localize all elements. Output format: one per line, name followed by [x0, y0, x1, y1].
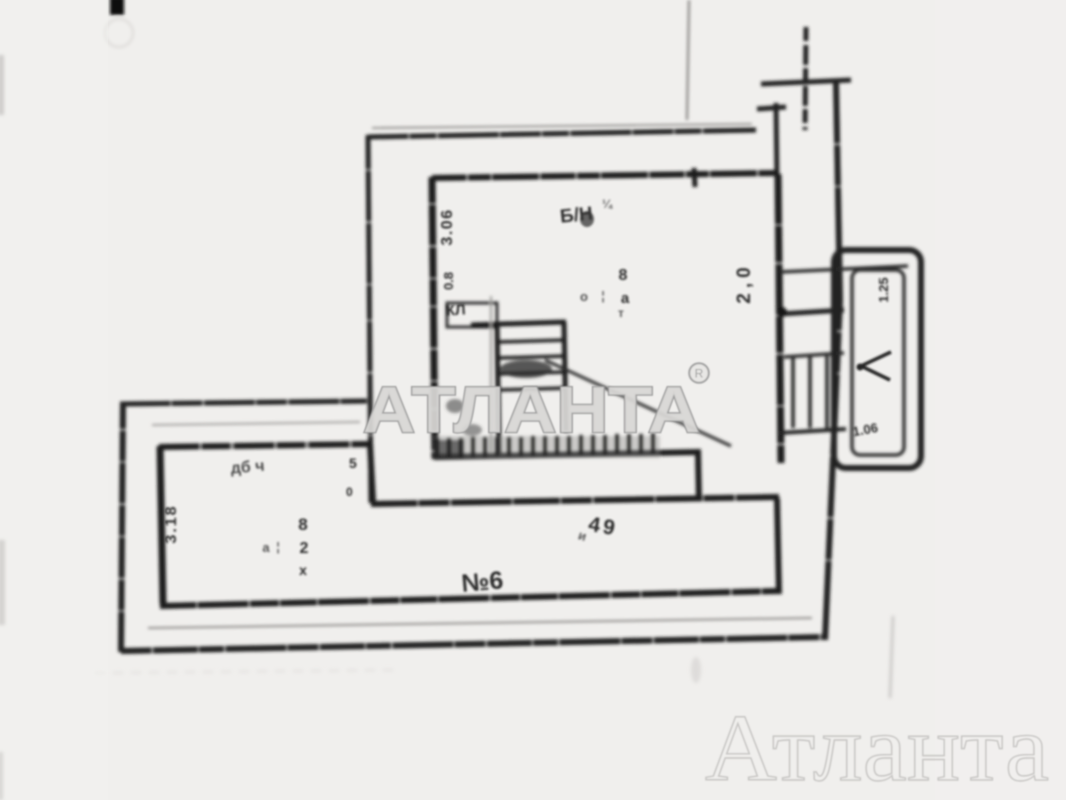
svg-text:0: 0 — [346, 485, 353, 499]
svg-text:т: т — [618, 306, 624, 320]
svg-text:КЛ: КЛ — [445, 301, 466, 319]
svg-text:¦: ¦ — [276, 540, 279, 554]
svg-text:о: о — [580, 289, 588, 304]
svg-text:АТЛАНТА: АТЛАНТА — [363, 373, 700, 446]
svg-text:R: R — [695, 367, 704, 381]
svg-text:5: 5 — [349, 455, 357, 471]
svg-text:а: а — [262, 540, 270, 555]
svg-text:а: а — [621, 290, 630, 307]
svg-text:0.8: 0.8 — [441, 272, 456, 290]
svg-text:8: 8 — [619, 267, 628, 284]
svg-text:дб ч: дб ч — [230, 458, 265, 478]
svg-text:2,0: 2,0 — [734, 262, 755, 303]
svg-text:8: 8 — [298, 515, 307, 534]
svg-text:Атланта: Атланта — [705, 695, 1049, 800]
svg-text:1.25: 1.25 — [876, 277, 891, 302]
svg-text:3.06: 3.06 — [439, 208, 456, 245]
svg-text:¦: ¦ — [601, 289, 604, 303]
svg-text:¼: ¼ — [602, 197, 613, 211]
svg-text:3.18: 3.18 — [163, 504, 180, 543]
svg-text:№6: №6 — [460, 566, 504, 598]
svg-text:х: х — [299, 562, 307, 578]
svg-text:2: 2 — [300, 540, 309, 557]
